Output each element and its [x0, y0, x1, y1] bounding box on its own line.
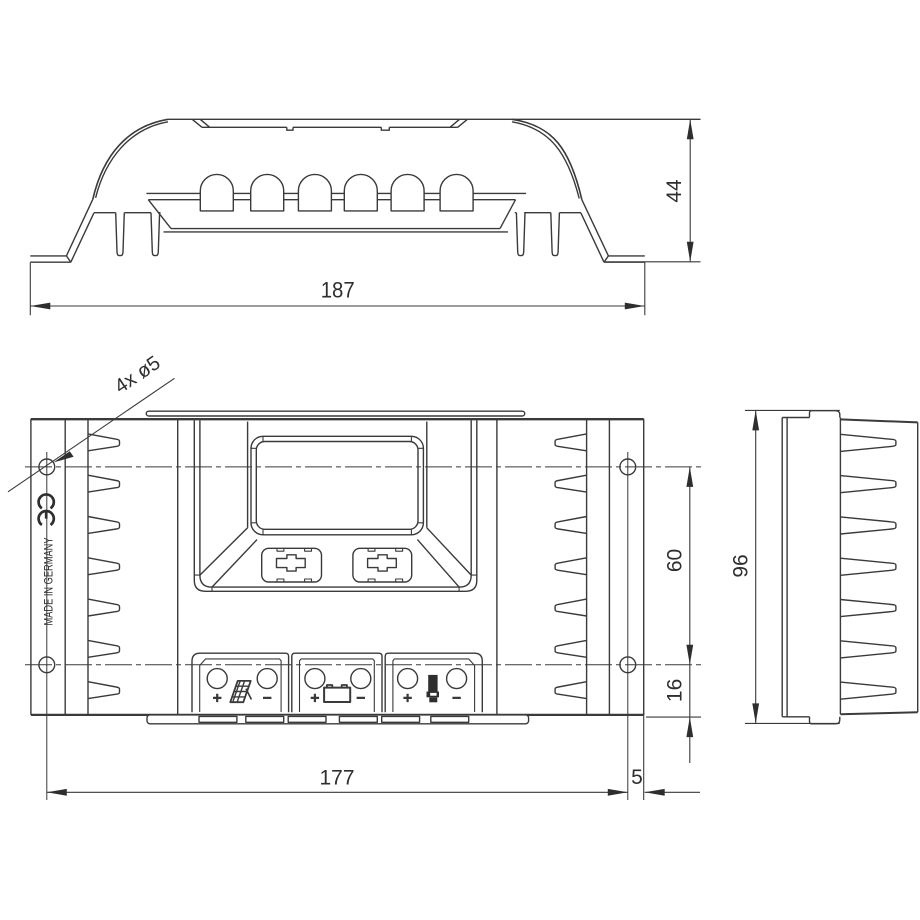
- svg-text:60: 60: [664, 549, 687, 572]
- svg-text:MADE IN GERMANY: MADE IN GERMANY: [44, 537, 56, 625]
- svg-text:44: 44: [663, 179, 686, 203]
- svg-text:96: 96: [730, 554, 753, 577]
- svg-text:16: 16: [664, 679, 687, 702]
- svg-text:187: 187: [321, 277, 355, 302]
- svg-text:5: 5: [631, 766, 643, 789]
- svg-text:177: 177: [320, 766, 355, 789]
